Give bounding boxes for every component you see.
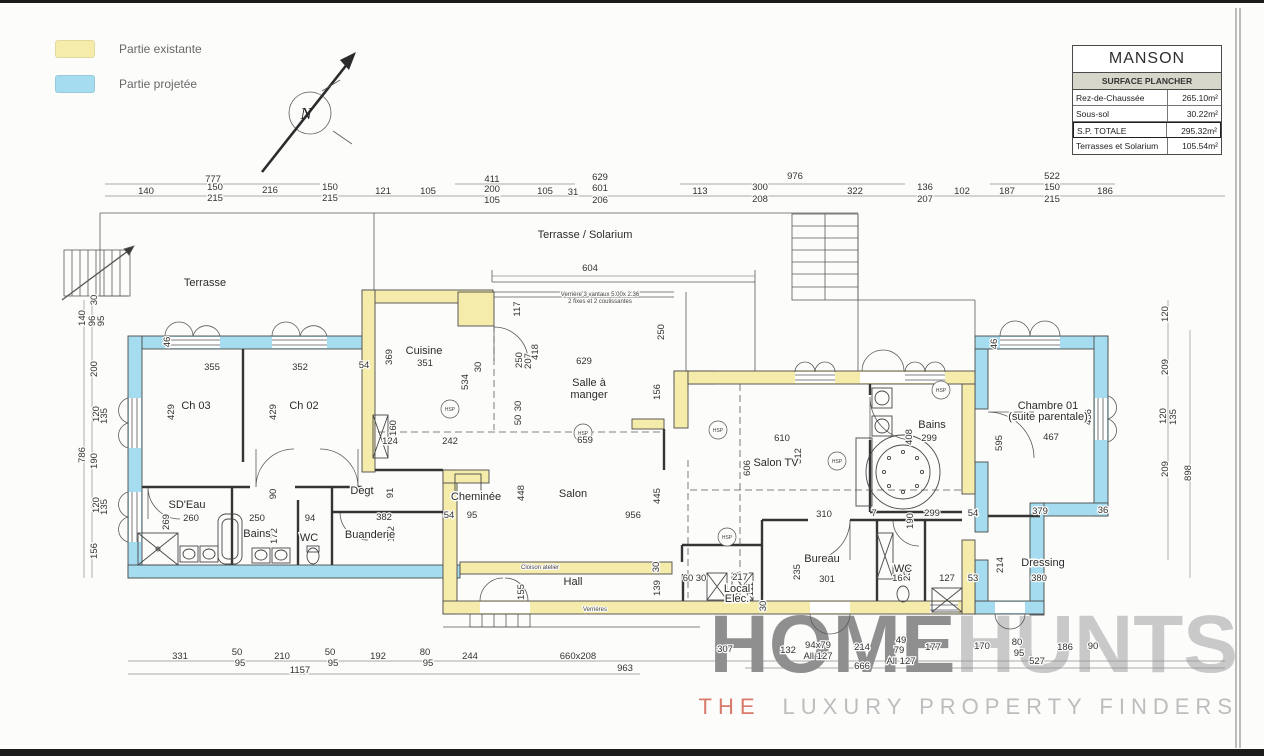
- dim-label: 429: [166, 404, 177, 420]
- dim-label: 242: [442, 436, 458, 447]
- dim-label: 269: [161, 514, 172, 530]
- dim-label: 190: [89, 453, 100, 469]
- dim-label: 215: [322, 193, 338, 204]
- dim-label: 95: [235, 658, 246, 669]
- dim-label: 666: [854, 661, 870, 672]
- dim-label: 54: [359, 360, 370, 371]
- dim-label: 352: [292, 362, 308, 373]
- dim-label: 186: [1097, 186, 1113, 197]
- room-label: Buanderie: [345, 529, 395, 541]
- dim-label: 150: [207, 182, 223, 193]
- surface-row-label: Terrasses et Solarium: [1073, 138, 1168, 154]
- dim-label: 186: [1057, 642, 1073, 653]
- sheet-border: [1236, 8, 1240, 748]
- dim-label: 156: [652, 384, 663, 400]
- dim-label: 94: [305, 513, 316, 524]
- dim-label: All 127: [803, 651, 832, 662]
- dim-label: 250: [656, 324, 667, 340]
- legend-swatch: [55, 75, 95, 93]
- dim-label: 187: [999, 186, 1015, 197]
- dim-label: 94x79: [805, 640, 831, 651]
- room-label: WC: [300, 532, 318, 544]
- dim-label: 190: [905, 513, 916, 529]
- hsp-label: HSP: [722, 535, 733, 541]
- sinks-right: [872, 388, 892, 436]
- dim-label: 606: [742, 460, 753, 476]
- room-label: SD'Eau: [169, 499, 206, 511]
- surface-row-label: S.P. TOTALE: [1074, 123, 1167, 137]
- dim-label: 595: [994, 435, 1005, 451]
- dim-label: 105: [420, 186, 436, 197]
- dim-label: 601: [592, 183, 608, 194]
- room-label: Cheminée: [451, 491, 501, 503]
- room-label: Bains: [243, 528, 271, 540]
- surface-row-value: 295.32m²: [1167, 123, 1220, 137]
- surface-table-row: Sous-sol30.22m²: [1073, 106, 1221, 122]
- dim-label: 215: [1044, 194, 1060, 205]
- round-bathtub-right: [856, 435, 940, 509]
- project-title: MANSON: [1073, 46, 1221, 73]
- dim-label: 534: [460, 374, 471, 390]
- dim-label: 95: [328, 658, 339, 669]
- room-label: Ch 02: [289, 400, 318, 412]
- hsp-label: HSP: [445, 407, 456, 413]
- dim-label: 299: [924, 508, 940, 519]
- dim-label: 214: [995, 557, 1006, 573]
- north-arrow-icon: N: [262, 52, 356, 172]
- dim-label: 113: [692, 186, 707, 197]
- dim-label: 90: [268, 489, 279, 500]
- dim-label: 209: [1160, 461, 1171, 477]
- dim-label: 105: [537, 186, 553, 197]
- dim-label: 429: [268, 404, 279, 420]
- dim-label: 30: [89, 295, 100, 306]
- dim-label: 127: [939, 573, 955, 584]
- dim-label: 206: [592, 195, 608, 206]
- dim-label: 408: [904, 429, 915, 445]
- hsp-label: HSP: [936, 388, 947, 394]
- dim-label: 210: [274, 651, 290, 662]
- dim-label: 95: [96, 316, 107, 327]
- room-label: WC: [894, 563, 912, 575]
- scan-edge-top: [0, 0, 1264, 3]
- surface-row-value: 105.54m²: [1168, 138, 1221, 154]
- dim-label: 30: [473, 362, 484, 373]
- dim-label: 522: [1044, 171, 1060, 182]
- dim-label: 331: [172, 651, 188, 662]
- dim-label: 208: [752, 194, 768, 205]
- dim-label: 322: [847, 186, 863, 197]
- shower-sdeau: [138, 533, 178, 565]
- legend-label: Partie projetée: [119, 77, 197, 91]
- dim-label: 53: [968, 573, 979, 584]
- dim-label: 260: [183, 513, 199, 524]
- room-label: Salon: [559, 488, 587, 500]
- dim-label: 80: [420, 647, 431, 658]
- dim-label: 207: [917, 194, 933, 205]
- room-label: Dressing: [1021, 557, 1064, 569]
- dim-label: 209: [1160, 359, 1171, 375]
- dim-label: 610: [774, 433, 790, 444]
- dim-label: 30: [696, 573, 707, 584]
- dim-label: 139: [652, 580, 663, 596]
- room-label: (suite parentale): [1008, 411, 1088, 423]
- dashed-lines: [378, 303, 962, 600]
- dim-label: 177: [925, 642, 941, 653]
- dim-label: 217: [732, 572, 748, 583]
- dim-label: 659: [577, 435, 593, 446]
- surface-table-row: Rez-de-Chaussée265.10m²: [1073, 90, 1221, 106]
- dim-label: 102: [954, 186, 970, 197]
- dim-label: 355: [204, 362, 220, 373]
- dim-label: 629: [592, 172, 608, 183]
- dim-label: 200: [484, 184, 500, 195]
- dim-label: 380: [1031, 573, 1047, 584]
- dim-label: 135: [99, 499, 110, 515]
- dim-label: 117: [512, 301, 523, 316]
- sinks-left: [180, 546, 290, 563]
- dim-label: 216: [262, 185, 278, 196]
- hsp-label: HSP: [832, 459, 843, 465]
- dim-label: 91: [385, 488, 396, 499]
- room-label: Degt: [350, 485, 373, 497]
- dim-label: 155: [516, 584, 527, 600]
- dim-label: 192: [370, 651, 386, 662]
- surface-row-label: Sous-sol: [1073, 106, 1168, 121]
- dim-label: 235: [792, 564, 803, 580]
- dim-label: 310: [816, 509, 832, 520]
- dim-label: 50: [325, 647, 336, 658]
- dim-label: 214: [854, 642, 870, 653]
- dim-label: 898: [1183, 465, 1194, 481]
- room-label: Terrasse: [184, 277, 226, 289]
- dim-label: 136: [917, 182, 933, 193]
- dim-label: 90: [1088, 641, 1099, 652]
- note-label: Cloison atelier: [521, 565, 559, 571]
- dim-label: 140: [138, 186, 154, 197]
- dim-label: 150: [1044, 182, 1060, 193]
- dim-label: 30: [651, 562, 662, 573]
- dim-label: 50: [232, 647, 243, 658]
- note-label: 2 fixes et 2 coulissantes: [568, 299, 632, 305]
- dim-label: 135: [1168, 409, 1179, 425]
- scan-edge-bottom: [0, 749, 1264, 756]
- legend-item-0: Partie existante: [55, 40, 202, 58]
- dim-label: 95: [1014, 648, 1025, 659]
- floor-plan-sheet: Partie existantePartie projetée MANSON S…: [0, 0, 1264, 756]
- entrance-steps: [470, 614, 530, 627]
- legend-item-1: Partie projetée: [55, 75, 202, 93]
- room-label: Elec.: [725, 593, 749, 605]
- dim-label: 250: [249, 513, 265, 524]
- dim-label: 351: [417, 358, 433, 369]
- dim-label: 132: [780, 645, 796, 656]
- dim-label: 786: [77, 447, 88, 463]
- toilet-right: [897, 586, 909, 602]
- dim-label: 379: [1032, 506, 1048, 517]
- dim-label: 963: [617, 663, 633, 674]
- dim-label: 369: [384, 349, 395, 365]
- dim-label: 124: [382, 436, 398, 447]
- dim-label: 46: [162, 337, 173, 348]
- dim-label: 604: [582, 263, 598, 274]
- dim-label: 301: [819, 574, 835, 585]
- hsp-label: HSP: [713, 428, 724, 434]
- dim-label: 660x208: [560, 651, 596, 662]
- dim-label: 170: [974, 641, 990, 652]
- surface-table-row: Terrasses et Solarium105.54m²: [1073, 138, 1221, 154]
- surface-row-value: 30.22m²: [1168, 106, 1221, 121]
- legend-swatch: [55, 40, 95, 58]
- dim-label: 300: [752, 182, 768, 193]
- dim-label: 629: [576, 356, 592, 367]
- room-label: Bains: [918, 419, 946, 431]
- dim-label: 60: [683, 573, 694, 584]
- dim-label: 54: [968, 508, 979, 519]
- legend: Partie existantePartie projetée: [55, 40, 202, 110]
- dim-label: 31: [568, 187, 579, 198]
- dim-label: 382: [376, 512, 392, 523]
- dim-label: 36: [1098, 505, 1109, 516]
- room-label: Salon TV: [753, 457, 799, 469]
- dim-label: 95: [423, 658, 434, 669]
- north-letter: N: [299, 104, 313, 123]
- dim-label: 215: [207, 193, 223, 204]
- dim-label: 156: [89, 543, 100, 559]
- legend-label: Partie existante: [119, 42, 202, 56]
- room-label: Salle à: [572, 377, 607, 389]
- dim-label: 79: [894, 645, 905, 656]
- surface-row-value: 265.10m²: [1168, 90, 1221, 105]
- dim-label: 121: [375, 186, 391, 197]
- dim-label: 80: [1012, 637, 1023, 648]
- dim-label: 160: [388, 420, 399, 436]
- dim-label: 105: [484, 195, 500, 206]
- dim-label: All 127: [886, 656, 915, 667]
- room-label: manger: [570, 389, 608, 401]
- toilet-left: [307, 546, 319, 564]
- surface-row-label: Rez-de-Chaussée: [1073, 90, 1168, 105]
- exterior-stairs-left: [62, 246, 134, 300]
- dim-label: 299: [921, 433, 937, 444]
- room-label: Ch 03: [181, 400, 210, 412]
- dim-label: 120: [1160, 306, 1171, 322]
- dim-label: 244: [462, 651, 478, 662]
- bathtub-left: [218, 514, 242, 564]
- note-label: Verrières: [583, 607, 607, 613]
- surface-table-rows: Rez-de-Chaussée265.10m²Sous-sol30.22m²S.…: [1073, 90, 1221, 154]
- dim-label: 30: [758, 601, 769, 612]
- dim-label: 956: [625, 510, 641, 521]
- exterior-stairs-right: [792, 214, 858, 300]
- room-label: Hall: [564, 576, 583, 588]
- dim-label: 150: [322, 182, 338, 193]
- dim-label: 976: [787, 171, 803, 182]
- walls-existing: [362, 290, 975, 614]
- room-labels: TerrasseTerrasse / SolariumCh 03Ch 02SD'…: [169, 229, 1088, 605]
- dim-label: 7: [871, 508, 876, 519]
- dim-label: 527: [1029, 656, 1045, 667]
- dim-label: 135: [99, 408, 110, 424]
- dim-label: 200: [89, 361, 100, 377]
- dim-label: 54: [444, 510, 455, 521]
- room-label: Cuisine: [406, 345, 443, 357]
- note-label: Verrière 3 vantaux 5.00x 2.36: [561, 292, 640, 298]
- title-block: MANSON SURFACE PLANCHER Rez-de-Chaussée2…: [1072, 45, 1222, 155]
- dim-label: 30: [513, 401, 524, 412]
- dim-label: 1157: [290, 665, 310, 676]
- room-label: Bureau: [804, 553, 839, 565]
- dim-label: 50: [513, 415, 524, 426]
- dim-label: 418: [530, 344, 541, 360]
- dim-label: 307: [717, 644, 733, 655]
- surface-table-row: S.P. TOTALE295.32m²: [1073, 122, 1221, 138]
- room-label: Terrasse / Solarium: [538, 229, 633, 241]
- dim-label: 95: [467, 510, 478, 521]
- dim-label: 467: [1043, 432, 1059, 443]
- dim-label: 448: [516, 485, 527, 501]
- surface-table-header: SURFACE PLANCHER: [1073, 73, 1221, 90]
- dim-label: 445: [652, 488, 663, 504]
- dim-label: 46: [989, 339, 1000, 350]
